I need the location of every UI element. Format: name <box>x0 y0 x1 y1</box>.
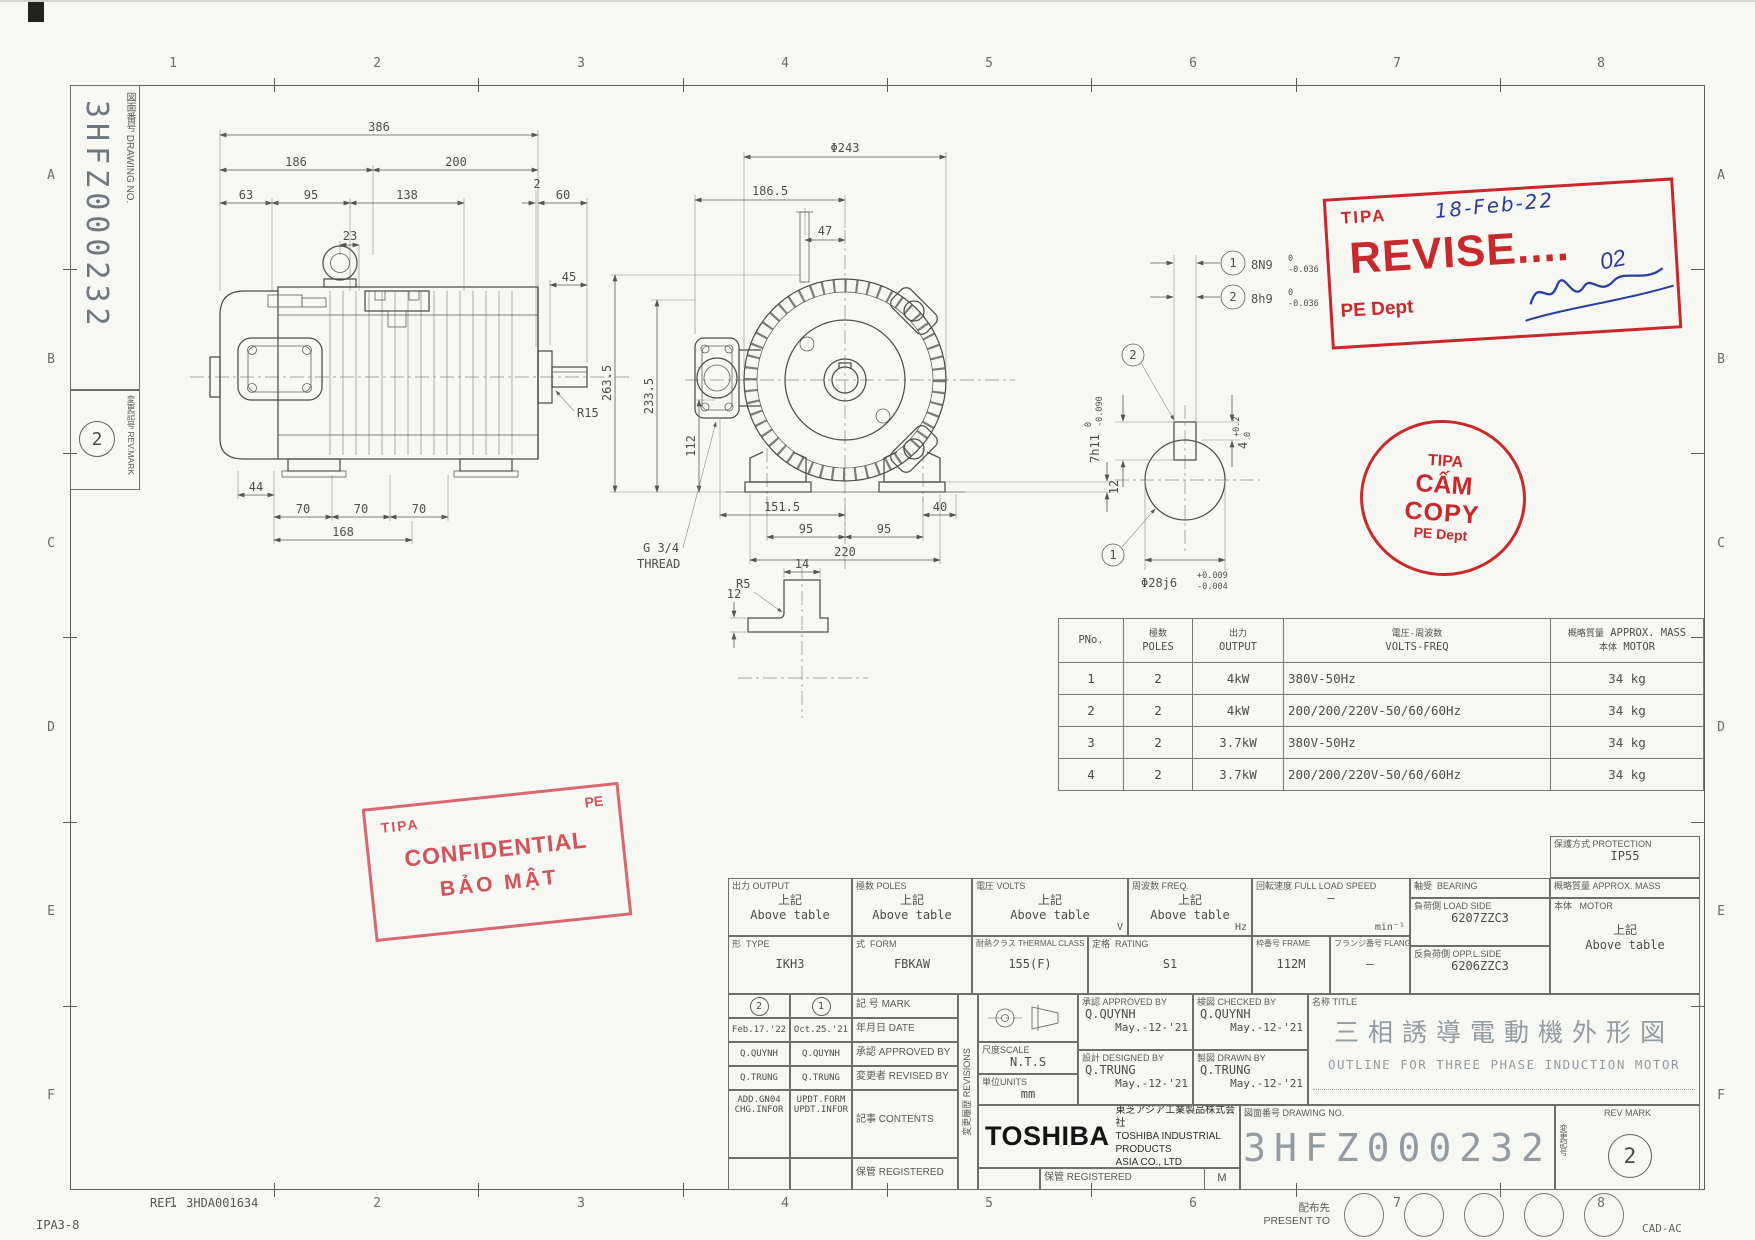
dim-2335: 233.5 <box>642 378 656 414</box>
zone-label: 4 <box>774 56 796 76</box>
dim-2: 2 <box>533 177 540 191</box>
zone-label: B <box>40 352 62 372</box>
zone-label: E <box>40 904 62 924</box>
dim-2635: 263.5 <box>600 365 614 401</box>
zone-label: 2 <box>366 56 388 76</box>
rev1-appr-cell: Q.QUYNH <box>790 1042 852 1066</box>
dim-r5: R5 <box>736 577 750 591</box>
flange-cell: フランジ番号 FLANGE – <box>1330 936 1410 994</box>
dim-60: 60 <box>556 188 570 202</box>
toshiba-logo: TOSHIBA <box>979 1121 1116 1152</box>
scale-cell: 尺度SCALE N.T.S <box>978 1042 1078 1074</box>
left-revmark-value: 2 <box>79 421 115 457</box>
revise-stamp-org: TIPA <box>1340 206 1387 229</box>
dim-138: 138 <box>396 188 418 202</box>
type-cell: 形 TYPE IKH3 <box>728 936 852 994</box>
revisions-strip: 変更履歴 REVISIONS <box>958 994 978 1190</box>
empty-cell <box>978 1168 1040 1190</box>
rev2-reg-cell <box>728 1158 790 1190</box>
left-drawno-label: 図面番号 DRAWING NO. <box>122 92 137 203</box>
projection-cell <box>978 994 1078 1042</box>
zone-label: B <box>1710 352 1732 372</box>
key-protrusion-dim: 4 +0.2 0 <box>1232 417 1253 449</box>
spec-row-3: 32 3.7kW380V-50Hz 34 kg <box>1059 727 1704 759</box>
dim-1865: 186.5 <box>752 184 788 198</box>
spec-col-output: 出力OUTPUT <box>1193 619 1284 663</box>
left-drawno-block: 図面番号 DRAWING NO. 3HFZ000232 <box>70 85 140 390</box>
revby-label-cell: 変更者 REVISED BY <box>852 1066 958 1090</box>
company-name-en1: TOSHIBA INDUSTRIAL PRODUCTS <box>1116 1130 1239 1156</box>
spec-row-2: 22 4kW200/200/220V-50/60/60Hz 34 kg <box>1059 695 1704 727</box>
rev2-appr-cell: Q.QUYNH <box>728 1042 790 1066</box>
spec-row-1: 12 4kW380V-50Hz 34 kg <box>1059 663 1704 695</box>
zone-label: E <box>1710 904 1732 924</box>
thermal-cell: 耐熱クラス THERMAL CLASS 155(F) <box>972 936 1088 994</box>
dim-44: 44 <box>249 480 263 494</box>
zone-label: 2 <box>366 1196 388 1216</box>
dim-63: 63 <box>239 188 253 202</box>
dim-70b: 70 <box>354 502 368 516</box>
spec-col-volts: 電圧-周波数VOLTS-FREQ <box>1284 619 1551 663</box>
zone-label: 4 <box>774 1196 796 1216</box>
key-height-dim: 7h11 0 -0.090 <box>1084 396 1105 463</box>
zone-label: C <box>1710 536 1732 556</box>
registered-strip: 保管 REGISTERED M <box>1040 1168 1240 1190</box>
rev2-by-cell: Q.TRUNG <box>728 1066 790 1090</box>
front-view-body <box>695 212 965 492</box>
spec-col-pno: PNo. <box>1059 619 1124 663</box>
present-to-circles <box>1344 1193 1624 1237</box>
side-view-body <box>210 246 587 477</box>
spec-col-poles: 極数POLES <box>1124 619 1193 663</box>
rev1-date-cell: Oct.25.'21 <box>790 1018 852 1042</box>
terminal-flange <box>695 338 739 418</box>
zone-label: 5 <box>978 56 1000 76</box>
key-slot-tol-top: 0 <box>1288 254 1293 264</box>
date-label-cell: 年月日 DATE <box>852 1018 958 1042</box>
left-revmark-block: 変更記号 REV.MARK 2 <box>70 390 140 490</box>
svg-text:0: 0 <box>1084 422 1094 427</box>
zone-label: 3 <box>570 1196 592 1216</box>
approved-cell: 承認 APPROVED BY Q.QUYNH May.-12-'21 <box>1078 994 1193 1050</box>
side-view: 386 186 200 63 95 138 2 60 23 45 R15 44 … <box>160 95 650 575</box>
rev2-contents-cell: ADD.GN04CHG.INFOR <box>728 1090 790 1158</box>
dim-95: 95 <box>304 188 318 202</box>
dim-45: 45 <box>562 270 576 284</box>
dim-1515: 151.5 <box>764 500 800 514</box>
rev2-mark-cell: 2 <box>728 994 790 1018</box>
dim-dia243: Φ243 <box>831 141 860 155</box>
spec-row-4: 42 3.7kW200/200/220V-50/60/60Hz 34 kg <box>1059 759 1704 791</box>
frame-cell: 枠番号 FRAME 112M <box>1252 936 1330 994</box>
form-number: IPA3-8 <box>36 1218 79 1232</box>
rating-cell: 定格 RATING S1 <box>1088 936 1252 994</box>
spec-table: PNo. 極数POLES 出力OUTPUT 電圧-周波数VOLTS-FREQ 概… <box>1058 618 1704 791</box>
ref-number: REF. 3HDA001634 <box>150 1196 258 1210</box>
dim-200: 200 <box>445 155 467 169</box>
mass-header: 概略質量 APPROX. MASS <box>1550 878 1700 898</box>
balloon-1: 1 <box>1229 256 1236 270</box>
left-drawno-value: 3HFZ000232 <box>79 100 114 331</box>
dim-14: 14 <box>795 558 809 571</box>
appr-label-cell: 承認 APPROVED BY <box>852 1042 958 1066</box>
dim-168: 168 <box>332 525 354 539</box>
zone-label: D <box>40 720 62 740</box>
dim-70a: 70 <box>296 502 310 516</box>
confidential-org: TIPA <box>380 816 420 836</box>
revise-stamp-date: 18-Feb-22 <box>1434 188 1556 223</box>
signature <box>1520 255 1679 332</box>
key-slot-size: 8N9 <box>1251 258 1273 272</box>
dim-70c: 70 <box>412 502 426 516</box>
confidential-stamp: TIPA PE CONFIDENTIAL BẢO MẬT <box>362 782 633 942</box>
front-view-extensions <box>610 152 1115 564</box>
zone-label: F <box>1710 1088 1732 1108</box>
key-slot-tol-bot: -0.036 <box>1288 265 1319 275</box>
shaft-dia-tol-top: +0.009 <box>1197 571 1228 581</box>
dim-95b: 95 <box>877 522 891 536</box>
zone-label: F <box>40 1088 62 1108</box>
pointer-1: 1 <box>1109 548 1116 562</box>
svg-text:-0.090: -0.090 <box>1095 396 1105 427</box>
company-name-jp: 東芝アジア工業製品株式会社 <box>1116 1105 1239 1130</box>
pointer-2: 2 <box>1129 348 1136 362</box>
zone-label: C <box>40 536 62 556</box>
cad-note: CAD-AC <box>1642 1222 1682 1235</box>
rev1-contents-cell: UPDT.FORMUPDT.INFOR <box>790 1090 852 1158</box>
scan-artifact <box>28 0 44 22</box>
dim-95a: 95 <box>799 522 813 536</box>
poles-cell: 極数 POLES 上記Above table <box>852 878 972 936</box>
zone-label: A <box>1710 168 1732 188</box>
rev1-reg-cell <box>790 1158 852 1190</box>
drawn-cell: 製図 DRAWN BY Q.TRUNG May.-12-'21 <box>1193 1050 1308 1105</box>
zone-label: 7 <box>1386 56 1408 76</box>
revmark-value: 2 <box>1608 1134 1652 1178</box>
mass-motor-cell: 本体 MOTOR 上記 Above table <box>1550 898 1700 994</box>
bearing-opp-cell: 反負荷側 OPP.L.SIDE 6206ZZC3 <box>1410 946 1550 994</box>
thread-note-2: THREAD <box>637 557 680 571</box>
company-name-en2: ASIA CO., LTD <box>1116 1156 1239 1168</box>
foot-detail-geometry <box>738 566 868 718</box>
scan-edge <box>0 0 1755 2</box>
zone-label: 8 <box>1590 56 1612 76</box>
svg-text:7h11: 7h11 <box>1088 434 1102 463</box>
confidential-corner: PE <box>584 793 604 811</box>
company-cell: TOSHIBA 東芝アジア工業製品株式会社 TOSHIBA INDUSTRIAL… <box>978 1105 1240 1168</box>
drawing-title-en: OUTLINE FOR THREE PHASE INDUCTION MOTOR <box>1309 1057 1699 1072</box>
no-copy-dept: PE Dept <box>1413 525 1468 544</box>
revmark-cell: 変更記号 REV MARK 2 <box>1555 1105 1700 1190</box>
zone-label: A <box>40 168 62 188</box>
zone-label: 6 <box>1182 1196 1204 1216</box>
no-copy-line1: CẤM <box>1415 469 1474 501</box>
reg-label-cell: 保管 REGISTERED <box>852 1158 958 1190</box>
dim-40: 40 <box>933 500 947 514</box>
drawing-no-value: 3HFZ000232 <box>1241 1126 1554 1170</box>
speed-cell: 回転速度 FULL LOAD SPEED – min⁻¹ <box>1252 878 1410 936</box>
foot-detail: 14 12 R5 <box>718 558 903 733</box>
designed-cell: 設計 DESIGNED BY Q.TRUNG May.-12-'21 <box>1078 1050 1193 1105</box>
dim-186: 186 <box>285 155 307 169</box>
zone-label: 3 <box>570 56 592 76</box>
shaft-dia: Φ28j6 <box>1141 576 1177 590</box>
front-view-dimensions <box>615 157 1107 560</box>
zone-label: 5 <box>978 1196 1000 1216</box>
zone-label: 6 <box>1182 56 1204 76</box>
protection-value: IP55 <box>1551 849 1699 863</box>
shaft-dia-tol-bot: -0.004 <box>1197 582 1228 592</box>
dim-23: 23 <box>343 229 357 243</box>
rev1-mark-cell: 1 <box>790 994 852 1018</box>
thread-note-1: G 3/4 <box>643 541 679 555</box>
left-revmark-label: 変更記号 REV.MARK <box>125 395 137 475</box>
rev2-date-cell: Feb.17.'22 <box>728 1018 790 1042</box>
svg-text:0: 0 <box>1243 432 1253 437</box>
key-size: 8h9 <box>1251 292 1273 306</box>
bearing-header: 軸受 BEARING <box>1410 878 1550 898</box>
svg-text:+0.2: +0.2 <box>1232 417 1242 437</box>
checked-cell: 検図 CHECKED BY Q.QUYNH May.-12-'21 <box>1193 994 1308 1050</box>
key-tol-top: 0 <box>1288 288 1293 298</box>
drawing-no-cell: 図面番号 DRAWING NO. 3HFZ000232 <box>1240 1105 1555 1190</box>
present-to: 配布先 PRESENT TO <box>1240 1192 1660 1238</box>
protection-cell: 保護方式 PROTECTION IP55 <box>1550 836 1700 878</box>
drawing-title-jp: 三相誘導電動機外形図 <box>1309 1013 1699 1049</box>
dim-112: 112 <box>684 435 698 457</box>
output-cell: 出力 OUTPUT 上記Above table <box>728 878 852 936</box>
contents-label-cell: 記事 CONTENTS <box>852 1090 958 1158</box>
spec-col-mass: 概略質量 APPROX. MASS本体 MOTOR <box>1551 619 1704 663</box>
registered-m-cell: M <box>1204 1169 1239 1189</box>
mark-label-cell: 記 号 MARK <box>852 994 958 1018</box>
zone-label: D <box>1710 720 1732 740</box>
third-angle-symbol <box>986 998 1070 1038</box>
zone-label: 1 <box>162 56 184 76</box>
units-cell: 単位UNITS mm <box>978 1074 1078 1105</box>
balloon-2: 2 <box>1229 290 1236 304</box>
svg-text:4: 4 <box>1236 442 1250 449</box>
dim-386: 386 <box>368 120 390 134</box>
dim-47: 47 <box>818 224 832 238</box>
revise-stamp-dept: PE Dept <box>1340 297 1414 323</box>
volts-cell: 電圧 VOLTS 上記Above table V <box>972 878 1128 936</box>
freq-cell: 周波数 FREQ. 上記Above table Hz <box>1128 878 1252 936</box>
dim-220: 220 <box>834 545 856 559</box>
key-tol-bot: -0.036 <box>1288 299 1319 309</box>
shaft-detail-dimensions <box>1115 263 1240 570</box>
form-cell: 式 FORM FBKAW <box>852 936 972 994</box>
drawing-sheet: 1 2 3 4 5 6 7 8 1 2 3 4 5 6 7 8 A B C D … <box>0 0 1755 1240</box>
title-cell: 名称 TITLE 三相誘導電動機外形図 OUTLINE FOR THREE PH… <box>1308 994 1700 1105</box>
revise-stamp: TIPA 18-Feb-22 REVISE.... 02 PE Dept <box>1323 177 1683 349</box>
bearing-load-cell: 負荷側 LOAD SIDE 6207ZZC3 <box>1410 898 1550 946</box>
rev1-by-cell: Q.TRUNG <box>790 1066 852 1090</box>
shaft-detail: 1 8N9 0 -0.036 2 8h9 0 -0.036 2 1 7h11 0… <box>1075 225 1365 605</box>
